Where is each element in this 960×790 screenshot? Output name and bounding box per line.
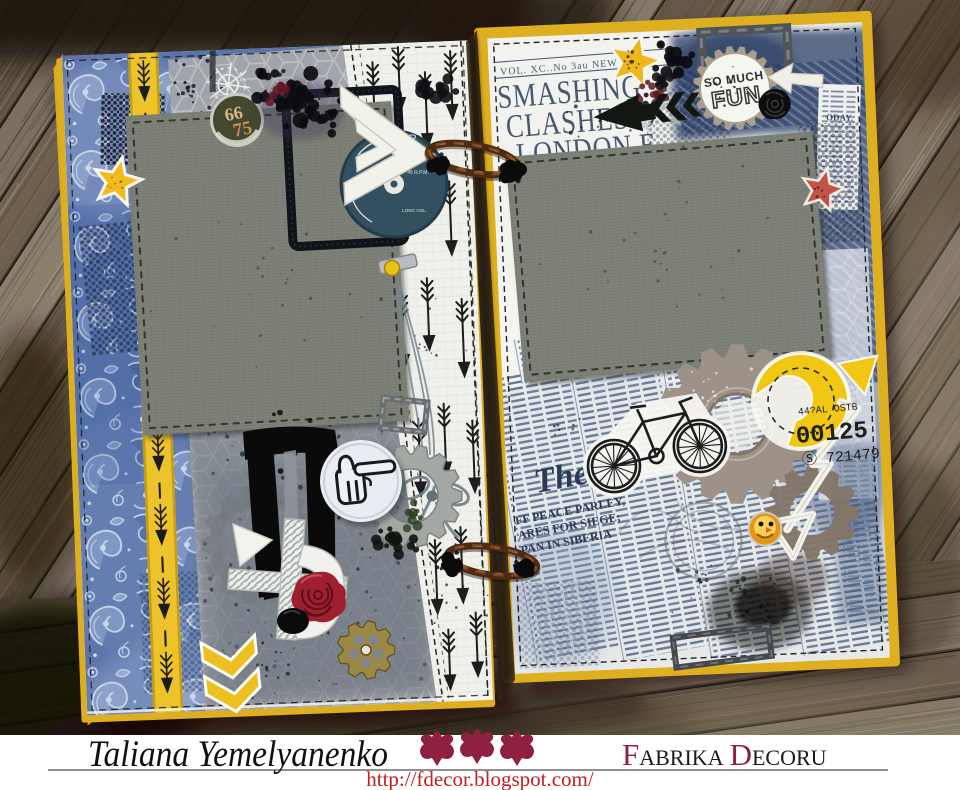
svg-text:Taliana Yemelyanenko: Taliana Yemelyanenko (88, 734, 388, 775)
svg-text:LONG GOL: LONG GOL (402, 208, 426, 213)
svg-text:ODAY.: ODAY. (826, 112, 853, 123)
svg-text:http://fdecor.blogspot.com/: http://fdecor.blogspot.com/ (366, 767, 594, 790)
svg-text:45 R.P.M.: 45 R.P.M. (407, 170, 429, 176)
